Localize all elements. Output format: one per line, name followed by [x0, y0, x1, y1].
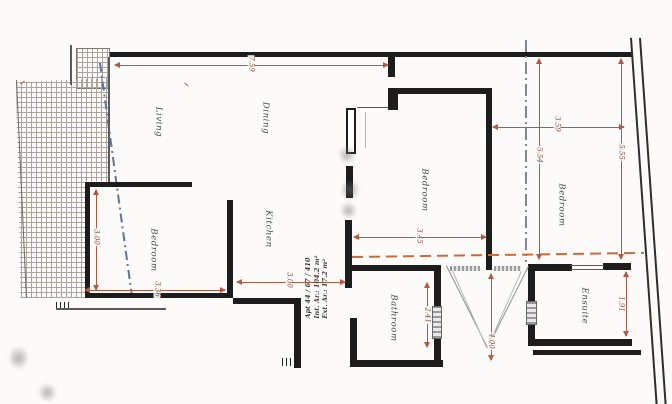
threshold-band: [494, 266, 521, 271]
room-label-living: Living: [154, 107, 163, 137]
ensuite-window-line: [570, 265, 604, 266]
apartment-info: Apt 44 / 67 / 410 Int. Ar.: 104.2 m² Ext…: [304, 255, 330, 318]
dimension-label-bedroom-right-depth-inner: 5.54: [536, 146, 543, 164]
room-label-bedroom-right: Bedroom: [557, 183, 566, 226]
wall-segment: [350, 360, 443, 367]
wall-segment: [388, 55, 395, 77]
dimension-label-bedroom-middle-width: 3.45: [416, 227, 423, 245]
wall-segment: [233, 298, 300, 304]
dimension-label-kitchen-width: 3.00: [286, 271, 293, 289]
wall-segment: [85, 182, 90, 298]
wall-segment: [388, 88, 492, 94]
wall-segment: [294, 298, 301, 368]
wall-segment: [434, 337, 441, 367]
room-label-dining: Dining: [261, 102, 270, 134]
wall-break-hatch: [282, 358, 293, 366]
scan-smudge: [341, 179, 359, 201]
wall-segment: [533, 350, 641, 355]
wall-line: [357, 107, 389, 108]
wall-segment: [533, 339, 632, 346]
room-label-bedroom-left: Bedroom: [149, 228, 158, 271]
room-label-kitchen: Kitchen: [264, 210, 273, 247]
dimension-label-bathroom-height: 2.41: [424, 306, 431, 324]
survey-tick: [184, 83, 188, 87]
dimension-label-bedroom-left-height: 3.00: [93, 228, 100, 246]
living-window-line: [108, 57, 110, 183]
setout-line: [365, 112, 366, 148]
bathroom-vent-window-band: [432, 306, 442, 339]
apartment-info-line3: Ext. Ar.: 17.2 m²: [321, 255, 330, 318]
dimension-label-ensuite-depth: 1.91: [618, 295, 625, 313]
wall-segment: [388, 88, 398, 110]
apartment-info-line1: Apt 44 / 67 / 410: [304, 255, 313, 318]
room-label-bedroom-middle: Bedroom: [420, 168, 429, 211]
ensuite-window-line: [570, 269, 604, 270]
terrace-hatch-main: [16, 78, 108, 298]
threshold-band: [450, 266, 480, 271]
dimension-line: [626, 272, 627, 336]
dimension-label-bedroom-right-depth-outer: 5.55: [618, 143, 625, 161]
floor-plan: 7.59 3.59 5.54 5.55 3.45 3.00 3.36 3.00 …: [0, 0, 672, 404]
apartment-info-line2: Int. Ar.: 104.2 m²: [313, 255, 322, 318]
wall-segment: [227, 200, 233, 298]
wall-segment: [345, 220, 352, 288]
wall-segment: [528, 264, 535, 302]
ledge-line: [56, 308, 166, 310]
scan-smudge: [340, 202, 357, 219]
room-label-ensuite: Ensuite: [580, 288, 589, 325]
boundary-dash-line: [352, 252, 644, 258]
scan-smudge: [339, 145, 355, 165]
wall-segment: [350, 318, 357, 364]
wall-segment: [434, 271, 441, 309]
wall-segment: [70, 45, 72, 85]
scan-smudge: [37, 384, 58, 401]
dimension-label-top-width: 7.59: [248, 55, 255, 73]
wall-segment: [345, 265, 441, 271]
wall-segment-top: [110, 52, 632, 57]
ledge-hatch: [56, 302, 70, 308]
demise-dash-line: [525, 40, 527, 262]
wall-segment: [530, 264, 572, 271]
dimension-label-bedroom-left-width: 3.36: [154, 280, 161, 298]
dimension-label-bedroom-right-width: 3.59: [554, 115, 561, 133]
room-label-bathroom: Bathroom: [389, 294, 398, 341]
scan-smudge: [10, 344, 27, 372]
void-cross-line: [452, 271, 487, 348]
wall-segment: [603, 263, 631, 270]
dimension-label-void-depth: 4.00: [488, 332, 495, 350]
wall-segment: [486, 94, 492, 270]
wall-segment: [85, 182, 192, 187]
ensuite-window-band: [526, 301, 537, 325]
